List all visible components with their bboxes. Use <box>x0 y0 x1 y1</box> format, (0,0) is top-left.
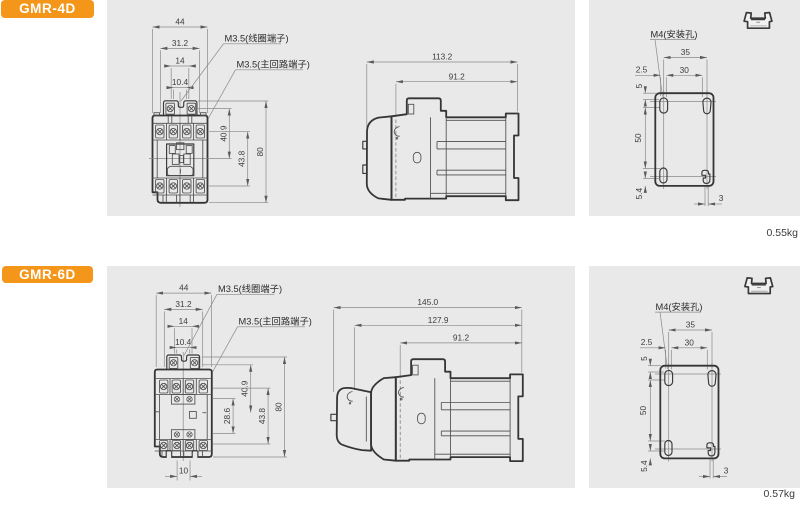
svg-text:30: 30 <box>680 65 690 75</box>
svg-text:43.8: 43.8 <box>237 150 247 167</box>
svg-text:44: 44 <box>179 283 189 293</box>
svg-text:43.8: 43.8 <box>257 408 267 425</box>
svg-text:2.5: 2.5 <box>636 64 648 74</box>
svg-text:91.2: 91.2 <box>449 71 466 81</box>
svg-text:3: 3 <box>719 193 724 203</box>
svg-text:40.9: 40.9 <box>240 380 250 397</box>
svg-text:35: 35 <box>681 47 691 57</box>
svg-text:113.2: 113.2 <box>432 52 453 62</box>
svg-text:M3.5(线圈端子): M3.5(线圈端子) <box>225 33 289 44</box>
svg-text:M3.5(主回路端子): M3.5(主回路端子) <box>237 59 310 70</box>
svg-text:44: 44 <box>175 17 185 27</box>
svg-text:91.2: 91.2 <box>453 333 470 343</box>
svg-text:127.9: 127.9 <box>428 315 449 325</box>
svg-text:5: 5 <box>634 83 644 88</box>
svg-text:M3.5(主回路端子): M3.5(主回路端子) <box>239 316 312 327</box>
svg-text:14: 14 <box>179 316 189 326</box>
svg-text:50: 50 <box>633 133 643 143</box>
svg-text:40.9: 40.9 <box>218 125 228 142</box>
svg-text:10: 10 <box>179 466 189 476</box>
svg-text:80: 80 <box>274 402 284 412</box>
svg-text:M3.5(线圈端子): M3.5(线圈端子) <box>218 283 282 294</box>
svg-text:M4(安装孔): M4(安装孔) <box>651 28 698 39</box>
svg-text:14: 14 <box>175 56 185 66</box>
svg-text:5.4: 5.4 <box>634 187 644 199</box>
svg-text:80: 80 <box>255 147 265 157</box>
svg-text:28.6: 28.6 <box>222 408 232 425</box>
svg-text:145.0: 145.0 <box>417 297 438 307</box>
svg-text:31.2: 31.2 <box>172 38 189 48</box>
svg-text:10.4: 10.4 <box>172 77 189 87</box>
svg-text:31.2: 31.2 <box>175 299 192 309</box>
